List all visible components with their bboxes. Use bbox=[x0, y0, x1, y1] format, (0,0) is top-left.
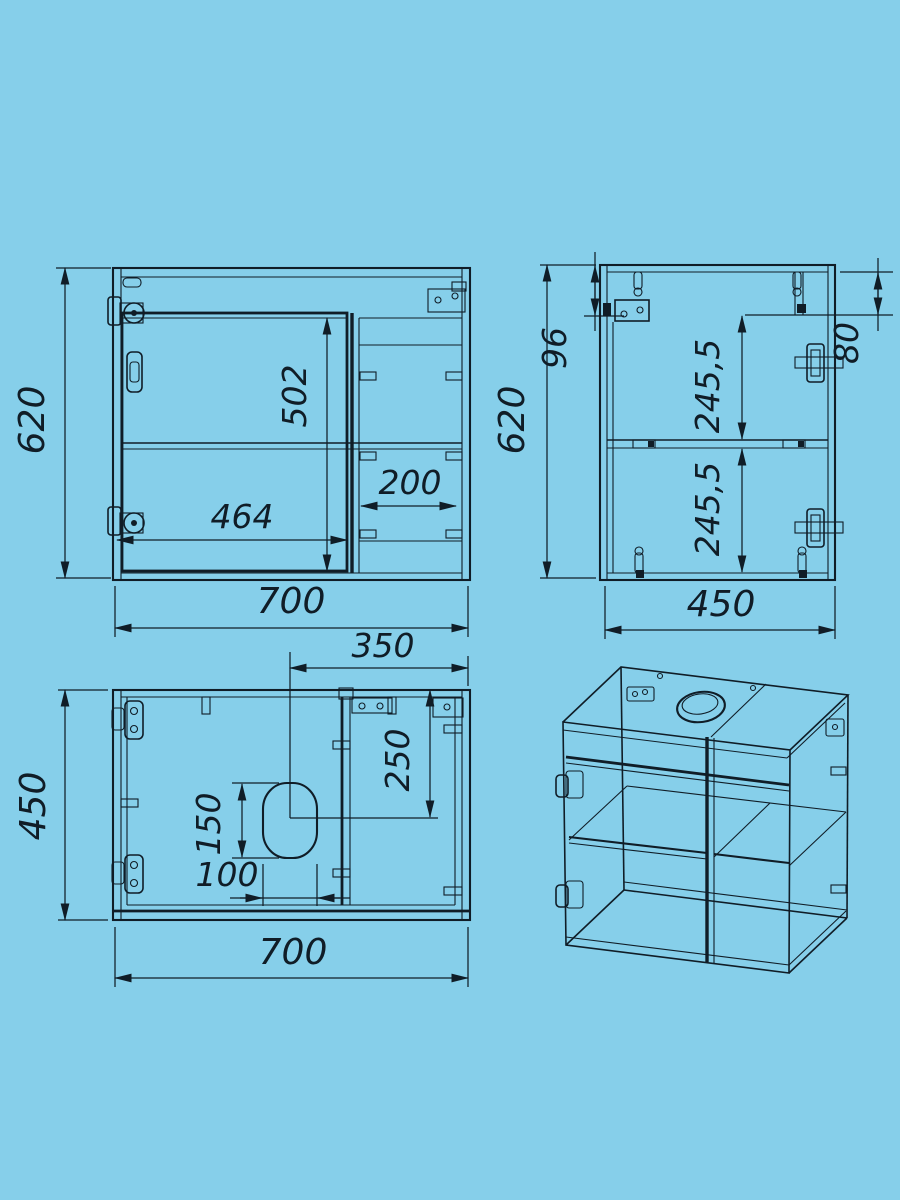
wall-hanger-bracket-icon bbox=[603, 300, 649, 321]
top-width-dim-label: 700 bbox=[259, 932, 328, 973]
front-view-dimensions: 620 700 502 464 200 bbox=[12, 268, 468, 637]
side-height-dim-label: 620 bbox=[492, 386, 533, 455]
top-view-dimensions: 450 700 350 250 150 100 bbox=[13, 626, 468, 987]
top-view: 450 700 350 250 150 100 bbox=[13, 626, 470, 987]
front-top-bracket bbox=[428, 282, 466, 312]
top-back-brackets bbox=[352, 698, 463, 717]
cabinet-technical-drawing: 620 700 502 464 200 bbox=[0, 0, 900, 1200]
hole-offset-y-dim-label: 250 bbox=[378, 729, 417, 792]
hinge-mount-plate-icon bbox=[127, 352, 142, 392]
top-depth-dim-label: 450 bbox=[13, 772, 54, 841]
hole-length-dim-label: 150 bbox=[189, 793, 228, 856]
hole-width-dim-label: 100 bbox=[196, 855, 259, 894]
iso-top-rail bbox=[566, 757, 789, 785]
iso-sink-hole bbox=[675, 689, 727, 725]
hole-offset-x-dim-label: 350 bbox=[352, 626, 415, 665]
right-section-width-dim-label: 200 bbox=[379, 463, 442, 502]
front-view: 620 700 502 464 200 bbox=[12, 268, 470, 637]
isometric-view bbox=[556, 667, 848, 973]
top-rail-depth-dim-label: 80 bbox=[827, 322, 866, 364]
front-height-dim-label: 620 bbox=[12, 386, 53, 455]
door-width-dim-label: 464 bbox=[211, 497, 274, 536]
front-width-dim-label: 700 bbox=[257, 581, 326, 622]
top-view-carcass bbox=[112, 688, 470, 920]
door-height-dim-label: 502 bbox=[275, 365, 314, 428]
upper-section-dim-label: 245,5 bbox=[688, 339, 727, 433]
top-dowels bbox=[634, 272, 801, 296]
side-depth-dim-label: 450 bbox=[687, 584, 756, 625]
lower-section-dim-label: 245,5 bbox=[688, 462, 727, 556]
hanger-offset-dim-label: 96 bbox=[535, 327, 574, 369]
drawing-page: 620 700 502 464 200 bbox=[0, 0, 900, 1200]
side-view: 620 96 80 245,5 245,5 450 bbox=[492, 252, 893, 639]
